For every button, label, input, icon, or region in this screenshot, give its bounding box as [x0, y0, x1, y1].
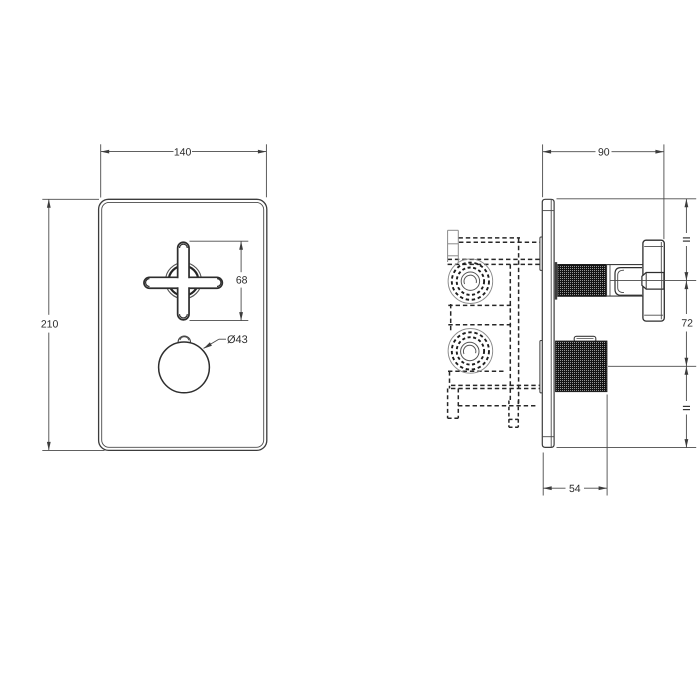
svg-text:54: 54 — [569, 483, 581, 495]
svg-text:68: 68 — [236, 274, 248, 286]
svg-text:90: 90 — [598, 146, 610, 158]
svg-text:210: 210 — [41, 318, 59, 330]
svg-text:72: 72 — [681, 317, 693, 329]
svg-text:Ø43: Ø43 — [227, 334, 248, 346]
svg-text:140: 140 — [174, 146, 192, 158]
